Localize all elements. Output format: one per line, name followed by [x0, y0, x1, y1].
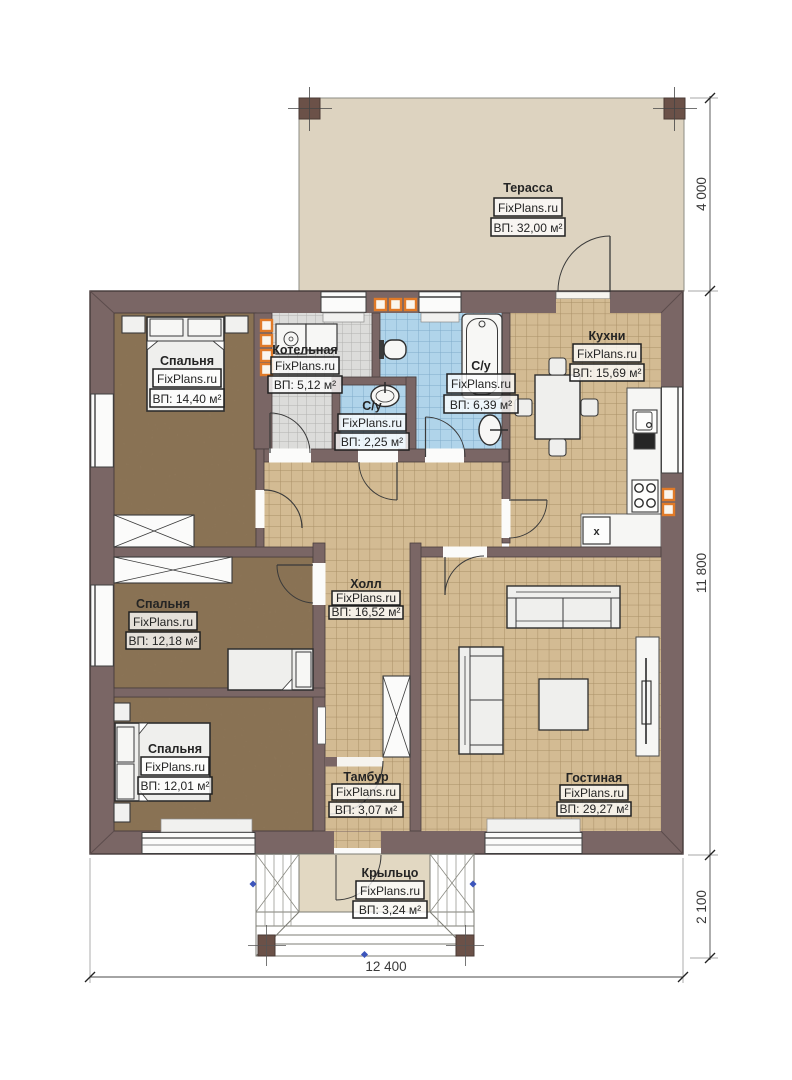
- svg-text:ВП: 16,52 м²: ВП: 16,52 м²: [332, 605, 401, 619]
- svg-text:FixPlans.ru: FixPlans.ru: [157, 372, 217, 386]
- svg-text:FixPlans.ru: FixPlans.ru: [145, 760, 205, 774]
- svg-text:Спальня: Спальня: [136, 597, 190, 611]
- svg-text:Терасса: Терасса: [503, 181, 554, 195]
- svg-text:ВП: 5,12 м²: ВП: 5,12 м²: [274, 378, 336, 392]
- svg-text:FixPlans.ru: FixPlans.ru: [577, 347, 637, 361]
- svg-text:Спальня: Спальня: [160, 354, 214, 368]
- svg-text:FixPlans.ru: FixPlans.ru: [342, 416, 402, 430]
- svg-text:ВП: 14,40 м²: ВП: 14,40 м²: [153, 392, 222, 406]
- svg-text:x: x: [593, 526, 600, 538]
- svg-text:2 100: 2 100: [694, 890, 709, 924]
- svg-text:Спальня: Спальня: [148, 742, 202, 756]
- svg-text:ВП: 3,24 м²: ВП: 3,24 м²: [359, 903, 421, 917]
- svg-text:11 800: 11 800: [694, 553, 709, 593]
- svg-text:FixPlans.ru: FixPlans.ru: [451, 377, 511, 391]
- svg-text:Кухни: Кухни: [589, 329, 626, 343]
- svg-text:Холл: Холл: [350, 577, 381, 591]
- svg-text:FixPlans.ru: FixPlans.ru: [133, 615, 193, 629]
- svg-text:4 000: 4 000: [694, 177, 709, 211]
- svg-text:FixPlans.ru: FixPlans.ru: [336, 591, 396, 605]
- svg-text:FixPlans.ru: FixPlans.ru: [498, 201, 558, 215]
- svg-text:FixPlans.ru: FixPlans.ru: [360, 884, 420, 898]
- svg-text:ВП: 6,39 м²: ВП: 6,39 м²: [450, 398, 512, 412]
- svg-text:Тамбур: Тамбур: [343, 770, 389, 784]
- svg-text:Крыльцо: Крыльцо: [362, 866, 419, 880]
- svg-text:ВП: 15,69 м²: ВП: 15,69 м²: [573, 366, 642, 380]
- svg-text:Гостиная: Гостиная: [566, 771, 623, 785]
- svg-text:С/у: С/у: [471, 359, 491, 373]
- svg-text:ВП: 3,07 м²: ВП: 3,07 м²: [335, 803, 397, 817]
- svg-text:ВП: 29,27 м²: ВП: 29,27 м²: [560, 802, 629, 816]
- svg-text:12 400: 12 400: [365, 959, 406, 974]
- svg-text:FixPlans.ru: FixPlans.ru: [275, 359, 335, 373]
- svg-text:Котельная: Котельная: [272, 343, 337, 357]
- svg-text:С/у: С/у: [362, 399, 382, 413]
- svg-text:ВП: 2,25 м²: ВП: 2,25 м²: [341, 435, 403, 449]
- svg-text:ВП: 32,00 м²: ВП: 32,00 м²: [494, 221, 563, 235]
- svg-text:FixPlans.ru: FixPlans.ru: [336, 785, 396, 799]
- svg-text:FixPlans.ru: FixPlans.ru: [564, 786, 624, 800]
- svg-text:ВП: 12,01 м²: ВП: 12,01 м²: [141, 779, 210, 793]
- svg-text:ВП: 12,18 м²: ВП: 12,18 м²: [129, 634, 198, 648]
